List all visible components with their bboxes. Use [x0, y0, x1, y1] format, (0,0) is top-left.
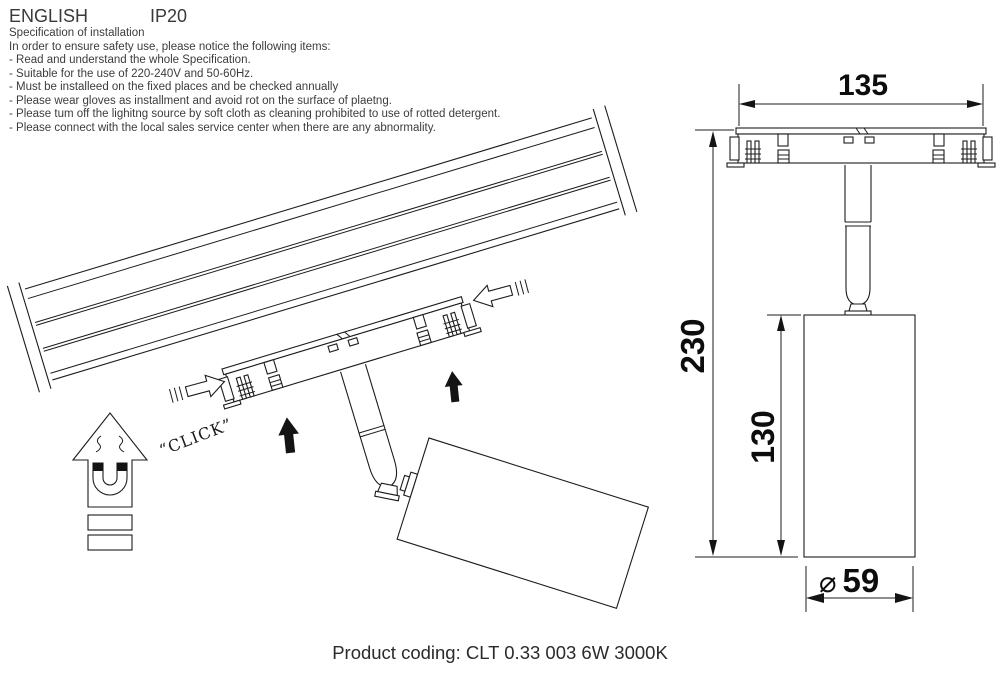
installation-diagram: “CLICK”	[7, 106, 648, 609]
diameter-symbol: ⌀	[819, 565, 836, 599]
dim-overall-height-label: 230	[674, 318, 711, 373]
lamp-body-perspective	[386, 434, 649, 608]
push-up-arrow	[277, 416, 301, 454]
insert-arrow-right	[168, 371, 227, 406]
track-adapter-perspective	[213, 294, 481, 409]
dim-width-label: 135	[838, 69, 888, 102]
product-coding: Product coding: CLT 0.33 003 6W 3000K	[0, 642, 1000, 664]
insert-arrow-left	[471, 276, 530, 311]
dim-diameter-label: ⌀59	[819, 562, 879, 599]
lamp-body-front	[804, 315, 915, 557]
motion-line	[88, 515, 132, 530]
technical-drawings: “CLICK”	[0, 0, 1000, 690]
dim-body-height: 130	[745, 315, 801, 556]
track-end-cap-right	[593, 106, 637, 216]
track-end-cap-left	[7, 282, 51, 392]
magnet-arrow-icon	[73, 413, 147, 550]
track-adapter-front	[727, 128, 995, 167]
motion-line	[88, 535, 132, 550]
spec-sheet-page: ENGLISH IP20 Specification of installati…	[0, 0, 1000, 690]
dim-body-height-label: 130	[745, 410, 781, 463]
fixture-stem-front	[845, 165, 871, 316]
dimension-diagram: 135 230 130	[674, 69, 995, 612]
dim-diameter: ⌀59	[806, 562, 913, 612]
push-up-arrow	[443, 370, 464, 403]
dim-overall-height: 230	[674, 130, 798, 557]
click-label: “CLICK”	[157, 414, 235, 459]
stem-joint-flange	[375, 482, 401, 500]
fixture-stem-perspective	[337, 364, 406, 507]
dim-width: 135	[739, 69, 983, 126]
